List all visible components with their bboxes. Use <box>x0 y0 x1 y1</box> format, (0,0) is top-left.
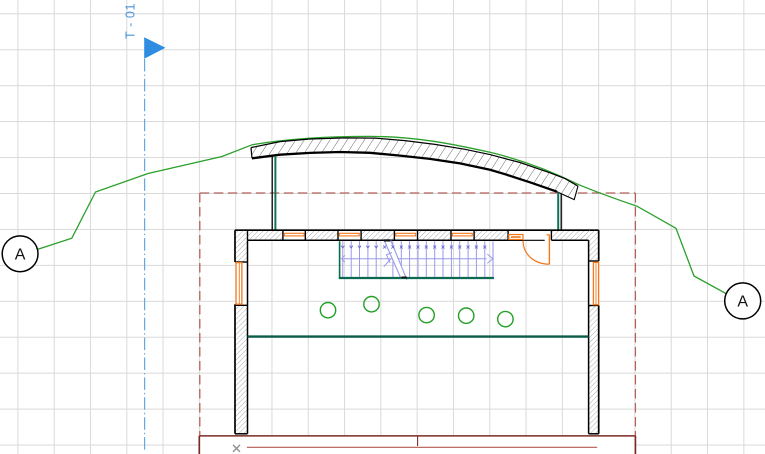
svg-text:A: A <box>737 294 748 311</box>
svg-text:A: A <box>15 247 26 264</box>
svg-text:T - 01: T - 01 <box>124 3 138 39</box>
